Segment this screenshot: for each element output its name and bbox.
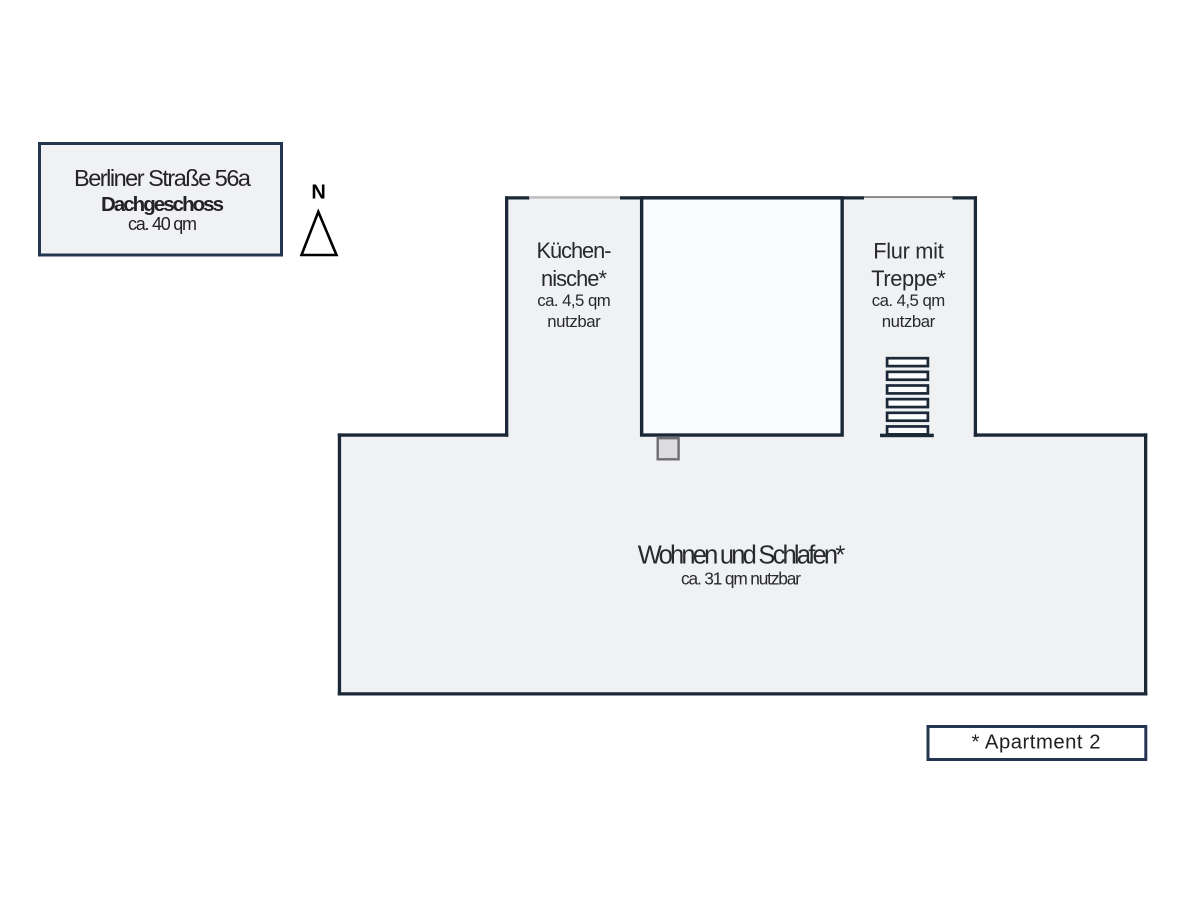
svg-text:Treppe*: Treppe* — [871, 266, 946, 291]
svg-text:nische*: nische* — [541, 266, 608, 291]
svg-text:N: N — [311, 182, 325, 204]
svg-text:ca. 4,5 qm: ca. 4,5 qm — [537, 291, 611, 310]
svg-text:ca. 40 qm: ca. 40 qm — [128, 214, 197, 234]
svg-text:Wohnen und Schlafen*: Wohnen und Schlafen* — [638, 541, 846, 569]
svg-text:ca. 4,5 qm: ca. 4,5 qm — [872, 291, 946, 310]
svg-text:ca. 31 qm nutzbar: ca. 31 qm nutzbar — [681, 569, 801, 589]
svg-text:Flur mit: Flur mit — [873, 239, 944, 264]
svg-text:Küchen-: Küchen- — [537, 238, 612, 263]
svg-text:Dachgeschoss: Dachgeschoss — [101, 193, 224, 216]
svg-text:Berliner Straße 56a: Berliner Straße 56a — [74, 165, 252, 191]
svg-text:nutzbar: nutzbar — [547, 312, 601, 331]
svg-text:nutzbar: nutzbar — [882, 312, 936, 331]
svg-text:* Apartment 2: * Apartment 2 — [972, 732, 1101, 754]
